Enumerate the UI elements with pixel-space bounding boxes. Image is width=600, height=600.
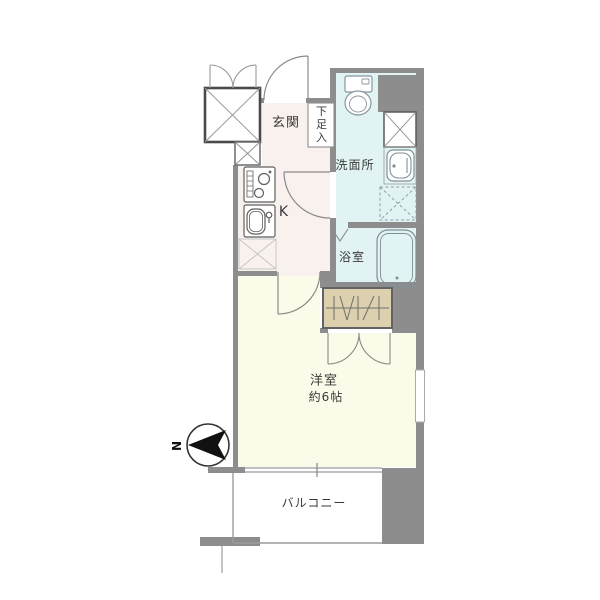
kitchen-label: K [279,205,289,219]
floor-plan: 玄関 下足入 洗面所 浴室 K 洋室 約6帖 バルコニー N [0,0,600,600]
washbasin-icon [384,147,416,184]
main-room-label: 洋室 [310,375,338,388]
balcony-label: バルコニー [282,497,347,509]
stove-icon [244,167,275,202]
bathroom-label: 浴室 [339,251,365,263]
floor-plan-drawing [0,0,600,600]
washroom-label: 洗面所 [335,159,374,171]
pipe-shaft [384,112,416,147]
shoe-cabinet-label: 下足入 [316,106,327,145]
entrance-door [264,56,308,100]
north-arrow [187,424,229,466]
north-label: N [171,441,183,451]
elevator-shaft [205,88,260,142]
entrance-label: 玄関 [272,117,300,130]
window-right-wall [416,370,425,422]
main-room-size-label: 約6帖 [309,391,344,403]
elevator-hall-doors [210,65,256,88]
closet [323,288,392,328]
meter-box [235,142,260,165]
toilet-icon [345,76,372,115]
kitchen-sink-icon [244,205,275,237]
